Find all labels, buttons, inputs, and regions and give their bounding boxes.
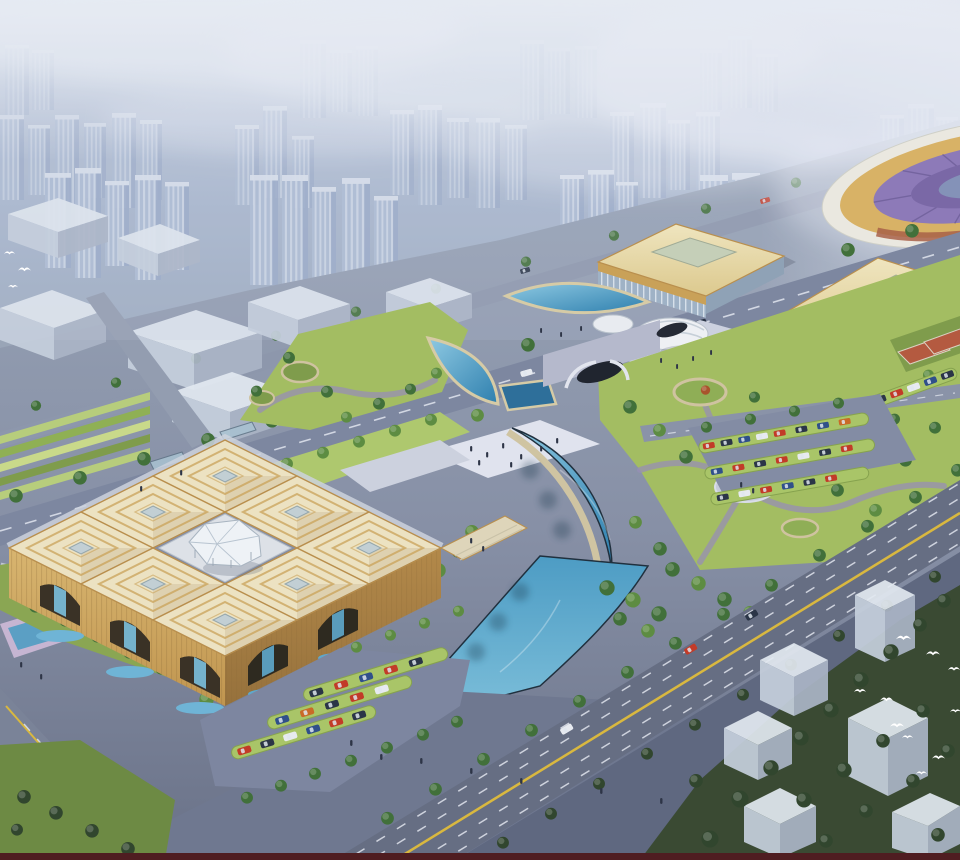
bottom-edge-strip <box>0 853 960 860</box>
aerial-city-render <box>0 0 960 860</box>
aerial-render-stage <box>0 0 960 860</box>
